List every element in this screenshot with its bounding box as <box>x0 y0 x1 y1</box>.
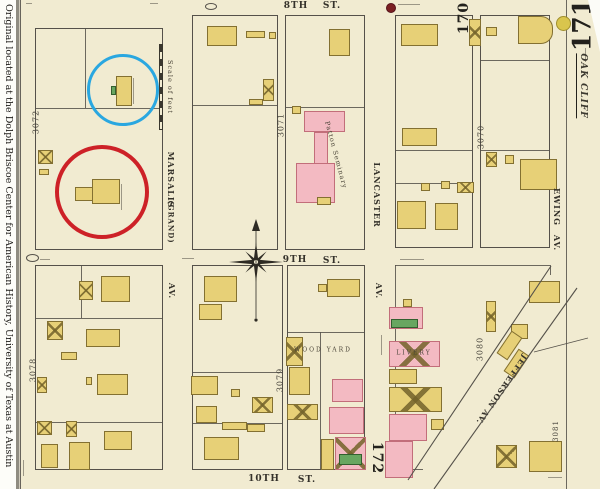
building <box>403 299 412 307</box>
block-number-3071: 3071 <box>277 113 286 137</box>
building <box>435 203 458 230</box>
building <box>38 150 53 164</box>
building <box>101 276 130 302</box>
building <box>529 281 560 303</box>
map-line <box>192 372 283 373</box>
block-number-3081: 3081 <box>552 420 560 442</box>
building <box>329 29 350 56</box>
blue-highlight-circle <box>87 54 159 126</box>
symbol-ellipse <box>205 3 217 10</box>
building <box>97 374 128 395</box>
micro-annotation <box>398 4 420 5</box>
building <box>41 444 58 468</box>
map-line <box>35 422 163 423</box>
building <box>385 441 413 478</box>
red-highlight-circle <box>55 145 149 239</box>
livery-label: Livery <box>396 350 431 357</box>
building <box>529 441 562 472</box>
street-label-8th: 8TH <box>284 1 308 11</box>
block-outline <box>480 15 550 248</box>
building <box>397 201 426 229</box>
building <box>292 106 301 114</box>
district-label: OAK CLIFF <box>576 53 588 118</box>
map-line <box>550 265 551 275</box>
building <box>339 454 362 465</box>
micro-annotation <box>182 258 194 259</box>
building <box>520 159 557 190</box>
building <box>196 406 217 423</box>
micro-annotation <box>40 259 50 260</box>
building <box>249 99 263 105</box>
sanborn-map-sheet: Original located at the Dolph Briscoe Ce… <box>0 0 600 489</box>
building <box>496 445 517 468</box>
micro-annotation <box>400 259 424 260</box>
building <box>518 16 553 44</box>
building <box>263 79 274 101</box>
building <box>486 27 497 36</box>
building <box>204 437 239 460</box>
building <box>39 169 49 175</box>
street-label-lancaster: LANCASTER <box>372 162 382 227</box>
building <box>86 329 120 347</box>
building <box>79 281 93 300</box>
building <box>431 419 444 430</box>
building <box>104 431 132 450</box>
map-line <box>566 0 567 489</box>
building <box>332 379 363 402</box>
scale-label: Scale of feet <box>166 60 174 114</box>
building <box>66 421 77 437</box>
building <box>231 389 240 397</box>
building <box>318 284 327 292</box>
building <box>246 31 265 38</box>
block-number-3079: 3079 <box>276 368 285 392</box>
micro-annotation <box>23 460 24 476</box>
building <box>37 421 52 435</box>
building <box>61 352 77 360</box>
street-label-lancaster-suffix: AV. <box>374 283 384 299</box>
building <box>389 414 427 441</box>
map-line <box>20 0 21 489</box>
building <box>327 279 360 297</box>
building <box>317 197 331 205</box>
building <box>37 377 47 393</box>
street-label-9th: 9TH <box>283 255 307 265</box>
block-number-3072: 3072 <box>32 110 41 134</box>
building <box>441 181 450 189</box>
building <box>391 319 418 328</box>
building <box>252 397 273 413</box>
block-number-3070: 3070 <box>477 125 486 149</box>
building <box>486 152 497 167</box>
map-line <box>35 318 163 319</box>
map-line <box>85 28 86 108</box>
block-number-3078: 3078 <box>29 358 38 382</box>
scale-bar <box>159 44 163 130</box>
building <box>69 442 90 470</box>
street-label-10th: 10TH <box>248 474 280 484</box>
map-line <box>395 265 550 266</box>
map-line <box>395 150 473 151</box>
building <box>47 321 63 340</box>
micro-annotation <box>26 3 32 4</box>
sheet-number-170: 170 <box>456 2 472 34</box>
building <box>389 387 442 412</box>
building <box>86 377 92 385</box>
building <box>401 24 438 46</box>
building <box>204 276 237 302</box>
sheet-number-172: 172 <box>369 442 385 474</box>
building <box>199 304 222 320</box>
building <box>505 155 514 164</box>
building <box>421 183 430 191</box>
street-label-9th-suffix: ST. <box>323 256 341 266</box>
block-outline <box>192 15 278 250</box>
street-label-marsalis-suffix: AV. <box>167 283 177 299</box>
building <box>321 439 334 470</box>
building <box>222 422 247 430</box>
map-line <box>192 105 278 106</box>
street-label-10th-suffix: ST. <box>298 475 316 485</box>
building <box>191 376 218 395</box>
block-number-3080: 3080 <box>476 337 485 361</box>
symbol-ellipse <box>26 254 39 262</box>
street-label-ewing: EWING <box>552 188 562 226</box>
map-line <box>480 60 550 61</box>
street-label-ewing-suffix: AV. <box>552 235 562 251</box>
wood-yard-label: Wood Yard <box>294 347 352 354</box>
building <box>269 32 276 39</box>
map-line <box>287 332 365 333</box>
building <box>329 407 364 434</box>
yellow-seal <box>556 16 571 31</box>
building <box>287 404 318 420</box>
block-outline <box>35 265 163 470</box>
building <box>247 424 265 432</box>
micro-annotation <box>150 3 158 4</box>
building <box>389 369 417 384</box>
micro-annotation <box>548 477 562 478</box>
map-line <box>480 150 550 151</box>
building <box>402 128 437 146</box>
building <box>289 367 310 395</box>
red-seal-dot <box>386 3 396 13</box>
building <box>314 132 328 164</box>
micro-annotation <box>381 335 382 355</box>
building <box>207 26 237 46</box>
street-label-8th-suffix: ST. <box>323 1 341 11</box>
street-label-marsalis-alt: (GRAND) <box>167 200 176 243</box>
building <box>457 182 474 193</box>
building <box>486 301 496 332</box>
